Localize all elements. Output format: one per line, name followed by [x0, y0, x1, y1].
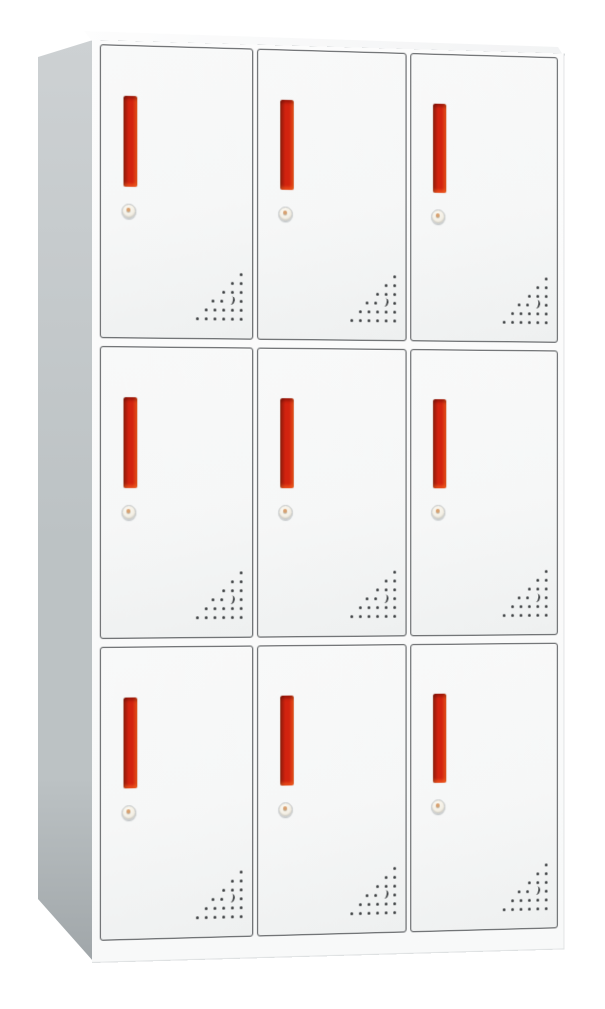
vent-hole — [220, 599, 223, 602]
vent-accent-hole — [380, 594, 389, 604]
ventilation-holes — [500, 274, 550, 327]
vent-hole — [375, 894, 378, 897]
vent-hole — [394, 867, 397, 870]
vent-hole — [222, 616, 225, 619]
vent-accent-hole — [226, 894, 235, 904]
vent-hole — [528, 605, 531, 608]
vent-row — [500, 567, 550, 576]
vent-hole — [366, 894, 369, 897]
vent-hole — [528, 588, 531, 591]
vent-hole — [239, 888, 242, 891]
locker-door — [257, 49, 407, 341]
vent-hole — [368, 310, 371, 313]
vent-hole — [528, 899, 531, 902]
vent-hole — [385, 589, 388, 592]
vent-hole — [220, 898, 223, 901]
keyhole-lock — [278, 505, 292, 520]
vent-row — [348, 612, 399, 621]
vent-hole — [359, 310, 362, 313]
lock-pin — [126, 810, 130, 814]
door-handle — [433, 694, 446, 783]
vent-hole — [359, 607, 362, 610]
vent-hole — [231, 616, 234, 619]
vent-hole — [376, 615, 379, 618]
vent-hole — [239, 581, 242, 584]
vent-hole — [222, 889, 225, 892]
vent-hole — [536, 907, 539, 910]
vent-accent-hole — [380, 297, 389, 307]
vent-hole — [511, 614, 514, 617]
vent-row — [193, 569, 245, 578]
vent-hole — [394, 902, 397, 905]
vent-hole — [231, 880, 234, 883]
vent-hole — [222, 907, 225, 910]
vent-hole — [231, 889, 234, 892]
vent-hole — [211, 299, 214, 302]
ventilation-holes — [348, 864, 399, 918]
vent-hole — [239, 572, 242, 575]
vent-hole — [239, 273, 242, 276]
lock-pin — [436, 509, 440, 513]
vent-hole — [545, 890, 548, 893]
vent-hole — [394, 275, 397, 278]
vent-row — [348, 586, 399, 595]
vent-hole — [520, 312, 523, 315]
vent-hole — [376, 319, 379, 322]
locker-door — [100, 44, 253, 339]
vent-hole — [520, 614, 523, 617]
vent-hole — [511, 908, 514, 911]
vent-hole — [526, 597, 529, 600]
vent-hole — [351, 912, 354, 915]
ventilation-holes — [500, 567, 550, 620]
vent-hole — [376, 606, 379, 609]
lock-pin — [436, 213, 440, 217]
vent-hole — [385, 310, 388, 313]
vent-row — [500, 576, 550, 585]
vent-hole — [213, 916, 216, 919]
vent-hole — [536, 579, 539, 582]
locker-door — [257, 347, 407, 638]
keyhole-lock — [278, 803, 292, 818]
vent-hole — [368, 903, 371, 906]
vent-hole — [220, 299, 223, 302]
vent-hole — [545, 863, 548, 866]
ventilation-holes — [348, 271, 399, 325]
ventilation-holes — [500, 860, 550, 914]
door-grid — [100, 44, 558, 941]
vent-hole — [520, 899, 523, 902]
vent-hole — [394, 284, 397, 287]
vent-hole — [376, 912, 379, 915]
door-handle — [124, 96, 138, 187]
ventilation-holes — [348, 568, 399, 621]
vent-hole — [520, 605, 523, 608]
vent-hole — [385, 902, 388, 905]
vent-hole — [394, 597, 397, 600]
vent-hole — [520, 908, 523, 911]
door-handle — [124, 698, 138, 789]
vent-hole — [375, 301, 378, 304]
vent-hole — [222, 317, 225, 320]
vent-hole — [351, 615, 354, 618]
vent-row — [500, 904, 550, 914]
vent-hole — [394, 310, 397, 313]
locker-door — [411, 349, 558, 637]
vent-hole — [503, 320, 506, 323]
vent-hole — [385, 885, 388, 888]
vent-hole — [196, 916, 199, 919]
vent-hole — [503, 614, 506, 617]
vent-hole — [536, 872, 539, 875]
vent-hole — [231, 915, 234, 918]
vent-hole — [359, 903, 362, 906]
vent-hole — [239, 879, 242, 882]
door-handle — [280, 100, 293, 190]
vent-hole — [222, 916, 225, 919]
vent-accent-hole — [532, 593, 541, 603]
vent-hole — [385, 606, 388, 609]
vent-hole — [368, 615, 371, 618]
vent-hole — [366, 598, 369, 601]
ventilation-holes — [193, 867, 245, 922]
vent-row — [193, 587, 245, 596]
vent-hole — [536, 295, 539, 298]
keyhole-lock — [122, 505, 137, 520]
vent-hole — [204, 308, 207, 311]
door-handle — [124, 397, 138, 488]
locker-door — [411, 643, 558, 932]
vent-hole — [545, 312, 548, 315]
vent-hole — [376, 885, 379, 888]
vent-hole — [385, 319, 388, 322]
vent-hole — [511, 312, 514, 315]
vent-hole — [528, 908, 531, 911]
vent-hole — [231, 906, 234, 909]
vent-hole — [503, 908, 506, 911]
vent-hole — [376, 292, 379, 295]
vent-hole — [518, 890, 521, 893]
vent-hole — [394, 876, 397, 879]
vent-hole — [536, 881, 539, 884]
vent-hole — [213, 616, 216, 619]
vent-hole — [204, 608, 207, 611]
vent-hole — [359, 615, 362, 618]
vent-hole — [351, 319, 354, 322]
keyhole-lock — [431, 800, 445, 815]
vent-hole — [359, 319, 362, 322]
vent-hole — [528, 312, 531, 315]
vent-hole — [545, 277, 548, 280]
vent-hole — [204, 916, 207, 919]
vent-hole — [231, 607, 234, 610]
vent-hole — [536, 321, 539, 324]
vent-row — [500, 602, 550, 611]
vent-hole — [536, 605, 539, 608]
vent-hole — [385, 911, 388, 914]
door-handle — [280, 696, 293, 786]
vent-hole — [376, 903, 379, 906]
vent-hole — [385, 580, 388, 583]
vent-row — [500, 594, 550, 603]
vent-hole — [385, 615, 388, 618]
vent-hole — [376, 310, 379, 313]
vent-hole — [196, 317, 199, 320]
vent-hole — [204, 616, 207, 619]
vent-hole — [385, 876, 388, 879]
vent-row — [500, 317, 550, 326]
vent-row — [348, 316, 399, 325]
vent-hole — [545, 614, 548, 617]
vent-hole — [239, 589, 242, 592]
vent-hole — [239, 915, 242, 918]
vent-hole — [545, 605, 548, 608]
vent-hole — [394, 571, 397, 574]
vent-hole — [239, 300, 242, 303]
vent-hole — [385, 293, 388, 296]
vent-hole — [239, 291, 242, 294]
vent-hole — [204, 317, 207, 320]
vent-hole — [213, 907, 216, 910]
vent-hole — [213, 608, 216, 611]
vent-hole — [536, 312, 539, 315]
keyhole-lock — [278, 206, 292, 221]
vent-row — [193, 613, 245, 622]
vent-hole — [528, 321, 531, 324]
vent-hole — [545, 286, 548, 289]
vent-accent-hole — [226, 594, 235, 604]
keyhole-lock — [431, 505, 445, 520]
vent-hole — [231, 317, 234, 320]
vent-hole — [211, 599, 214, 602]
vent-hole — [394, 293, 397, 296]
door-handle — [280, 398, 293, 488]
keyhole-lock — [122, 805, 137, 820]
keyhole-lock — [431, 209, 445, 224]
lock-pin — [436, 804, 440, 808]
lock-pin — [283, 211, 287, 215]
vent-hole — [239, 598, 242, 601]
vent-hole — [222, 607, 225, 610]
vent-hole — [385, 284, 388, 287]
vent-hole — [545, 303, 548, 306]
vent-hole — [231, 581, 234, 584]
vent-hole — [239, 308, 242, 311]
vent-hole — [375, 598, 378, 601]
vent-hole — [222, 590, 225, 593]
vent-hole — [239, 607, 242, 610]
vent-hole — [394, 606, 397, 609]
vent-hole — [394, 580, 397, 583]
vent-hole — [526, 303, 529, 306]
vent-row — [348, 603, 399, 612]
vent-hole — [239, 897, 242, 900]
locker-cabinet-photo — [0, 0, 605, 1009]
vent-hole — [511, 321, 514, 324]
vent-hole — [359, 912, 362, 915]
vent-hole — [545, 579, 548, 582]
vent-hole — [231, 590, 234, 593]
vent-hole — [231, 308, 234, 311]
vent-hole — [394, 911, 397, 914]
vent-hole — [394, 885, 397, 888]
lock-pin — [283, 509, 287, 513]
keyhole-lock — [122, 204, 137, 219]
vent-row — [348, 908, 399, 918]
vent-hole — [518, 303, 521, 306]
vent-hole — [231, 290, 234, 293]
vent-hole — [545, 295, 548, 298]
vent-hole — [520, 321, 523, 324]
lock-pin — [283, 807, 287, 811]
vent-accent-hole — [380, 890, 389, 900]
locker-door — [100, 346, 253, 640]
vent-hole — [211, 898, 214, 901]
vent-accent-hole — [226, 295, 235, 305]
locker-door — [257, 644, 407, 936]
cabinet-left-side-panel — [38, 40, 93, 962]
vent-hole — [545, 588, 548, 591]
vent-hole — [545, 872, 548, 875]
vent-row — [348, 577, 399, 586]
vent-hole — [536, 899, 539, 902]
vent-hole — [376, 589, 379, 592]
vent-row — [193, 578, 245, 587]
vent-hole — [394, 301, 397, 304]
vent-hole — [239, 317, 242, 320]
lock-pin — [126, 208, 130, 212]
door-handle — [433, 399, 446, 488]
vent-hole — [545, 321, 548, 324]
vent-hole — [545, 898, 548, 901]
vent-hole — [536, 286, 539, 289]
vent-hole — [239, 282, 242, 285]
vent-hole — [196, 617, 199, 620]
vent-row — [348, 568, 399, 577]
vent-row — [193, 314, 245, 324]
vent-accent-hole — [532, 299, 541, 309]
vent-hole — [526, 890, 529, 893]
vent-hole — [528, 614, 531, 617]
locker-door — [411, 53, 558, 342]
locker-door — [100, 646, 253, 941]
vent-hole — [518, 597, 521, 600]
vent-hole — [231, 282, 234, 285]
vent-hole — [239, 906, 242, 909]
vent-row — [348, 595, 399, 604]
vent-hole — [394, 893, 397, 896]
vent-hole — [545, 570, 548, 573]
vent-row — [193, 912, 245, 922]
ventilation-holes — [193, 269, 245, 323]
vent-hole — [511, 606, 514, 609]
vent-hole — [545, 907, 548, 910]
vent-hole — [536, 614, 539, 617]
vent-hole — [511, 899, 514, 902]
vent-hole — [239, 870, 242, 873]
vent-hole — [239, 616, 242, 619]
vent-hole — [222, 308, 225, 311]
door-handle — [433, 104, 446, 193]
vent-accent-hole — [532, 886, 541, 896]
cabinet-front-face — [92, 40, 564, 963]
vent-hole — [368, 606, 371, 609]
vent-hole — [528, 881, 531, 884]
vent-row — [500, 585, 550, 594]
vent-hole — [204, 907, 207, 910]
vent-hole — [368, 912, 371, 915]
vent-hole — [394, 615, 397, 618]
vent-hole — [528, 294, 531, 297]
lock-pin — [126, 509, 130, 513]
vent-hole — [368, 319, 371, 322]
vent-row — [193, 604, 245, 613]
vent-hole — [545, 597, 548, 600]
vent-hole — [545, 881, 548, 884]
vent-hole — [366, 301, 369, 304]
vent-hole — [213, 308, 216, 311]
vent-hole — [536, 588, 539, 591]
ventilation-holes — [193, 569, 245, 623]
vent-hole — [394, 319, 397, 322]
vent-hole — [222, 290, 225, 293]
vent-hole — [394, 589, 397, 592]
vent-row — [500, 611, 550, 620]
vent-hole — [213, 317, 216, 320]
vent-row — [193, 595, 245, 604]
